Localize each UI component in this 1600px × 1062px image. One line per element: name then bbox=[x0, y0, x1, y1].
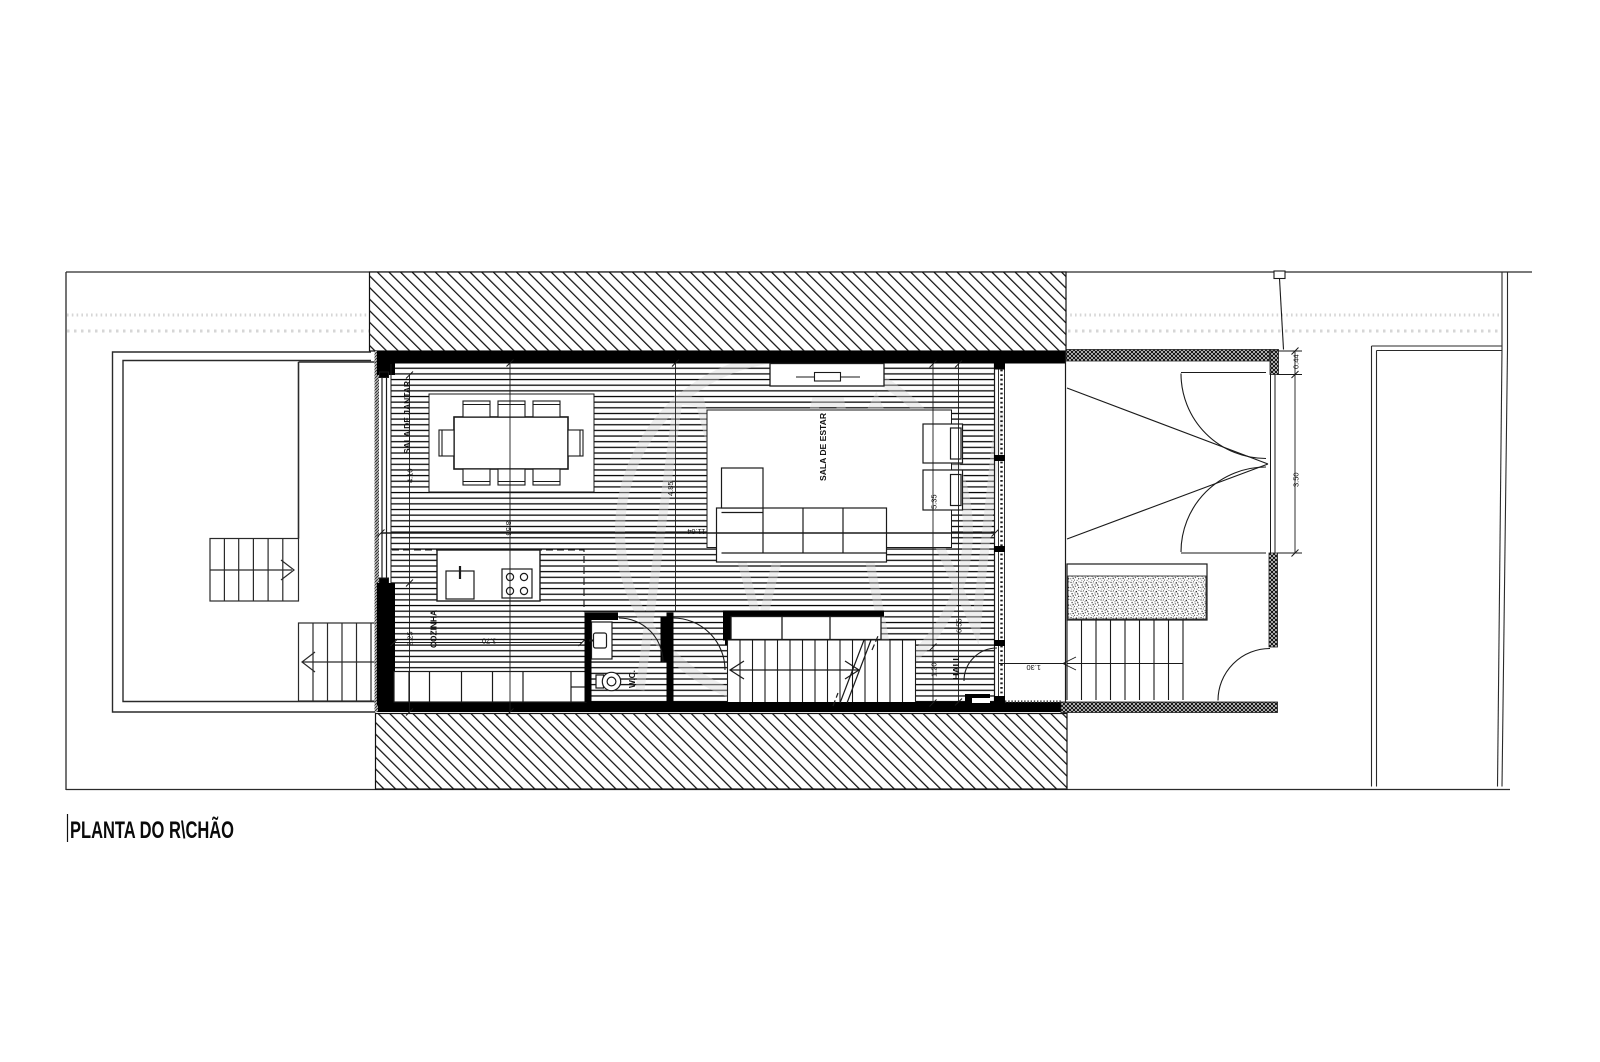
svg-text:5.35: 5.35 bbox=[930, 494, 939, 509]
svg-text:11.64: 11.64 bbox=[687, 527, 705, 536]
svg-text:PLANTA DO R\CHÃO: PLANTA DO R\CHÃO bbox=[70, 816, 234, 844]
svg-text:1.30: 1.30 bbox=[1026, 663, 1041, 672]
svg-text:HALL: HALL bbox=[951, 655, 961, 680]
svg-text:2.25: 2.25 bbox=[406, 631, 415, 646]
svg-text:SALA DE JANTAR: SALA DE JANTAR bbox=[403, 381, 412, 454]
svg-text:W.C.: W.C. bbox=[628, 670, 637, 688]
svg-text:3.70: 3.70 bbox=[482, 637, 497, 646]
svg-text:SALA DE ESTAR: SALA DE ESTAR bbox=[819, 413, 828, 481]
svg-text:6.55: 6.55 bbox=[955, 618, 964, 633]
svg-text:4.10: 4.10 bbox=[406, 468, 415, 483]
svg-text:4.85: 4.85 bbox=[666, 481, 675, 496]
svg-text:3.50: 3.50 bbox=[1292, 472, 1301, 487]
svg-text:1.20: 1.20 bbox=[930, 662, 939, 677]
svg-text:0.44: 0.44 bbox=[1292, 354, 1301, 369]
